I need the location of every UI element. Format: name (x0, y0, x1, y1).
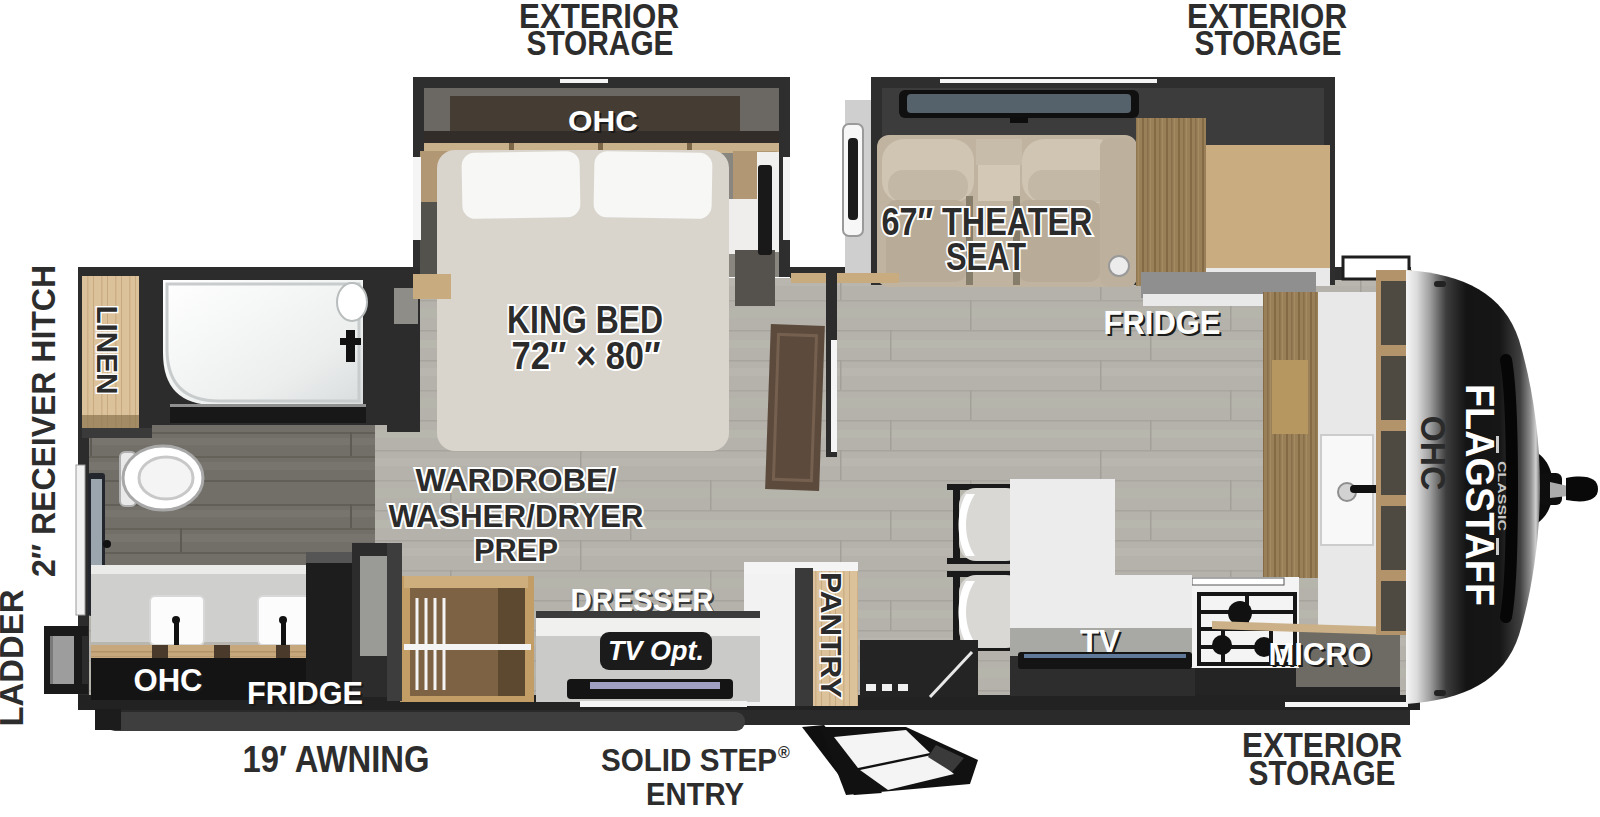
svg-text:OHC: OHC (134, 663, 203, 698)
svg-text:FRIDGE: FRIDGE (247, 676, 363, 711)
svg-text:PREP: PREP (474, 532, 558, 568)
svg-text:2″ RECEIVER HITCH: 2″ RECEIVER HITCH (25, 265, 62, 577)
svg-text:WARDROBE/: WARDROBE/ (416, 462, 617, 498)
svg-text:MICRO: MICRO (1269, 637, 1372, 672)
svg-text:19′ AWNING: 19′ AWNING (243, 739, 430, 780)
svg-text:72″ × 80″: 72″ × 80″ (512, 335, 661, 377)
svg-text:FRIDGE: FRIDGE (1104, 304, 1221, 341)
svg-text:SEAT: SEAT (946, 236, 1026, 278)
svg-text:TV: TV (1080, 624, 1120, 659)
svg-text:WASHER/DRYER: WASHER/DRYER (389, 498, 644, 534)
svg-text:STORAGE: STORAGE (1195, 23, 1342, 62)
svg-text:®: ® (778, 744, 790, 761)
svg-text:ENTRY: ENTRY (646, 777, 744, 812)
svg-text:OHC: OHC (1414, 416, 1453, 491)
svg-text:TV Opt.: TV Opt. (608, 636, 704, 666)
svg-text:OHC: OHC (568, 104, 638, 137)
svg-text:STORAGE: STORAGE (527, 23, 674, 62)
svg-text:CLASSIC: CLASSIC (1496, 461, 1507, 531)
svg-text:LADDER: LADDER (0, 589, 30, 726)
svg-text:FLAGSTAFF: FLAGSTAFF (1458, 384, 1502, 606)
svg-text:STORAGE: STORAGE (1249, 753, 1396, 792)
svg-text:SOLID STEP: SOLID STEP (601, 743, 777, 778)
svg-text:PANTRY: PANTRY (815, 572, 848, 698)
svg-text:DRESSER: DRESSER (571, 582, 714, 618)
svg-text:LINEN: LINEN (91, 306, 124, 395)
